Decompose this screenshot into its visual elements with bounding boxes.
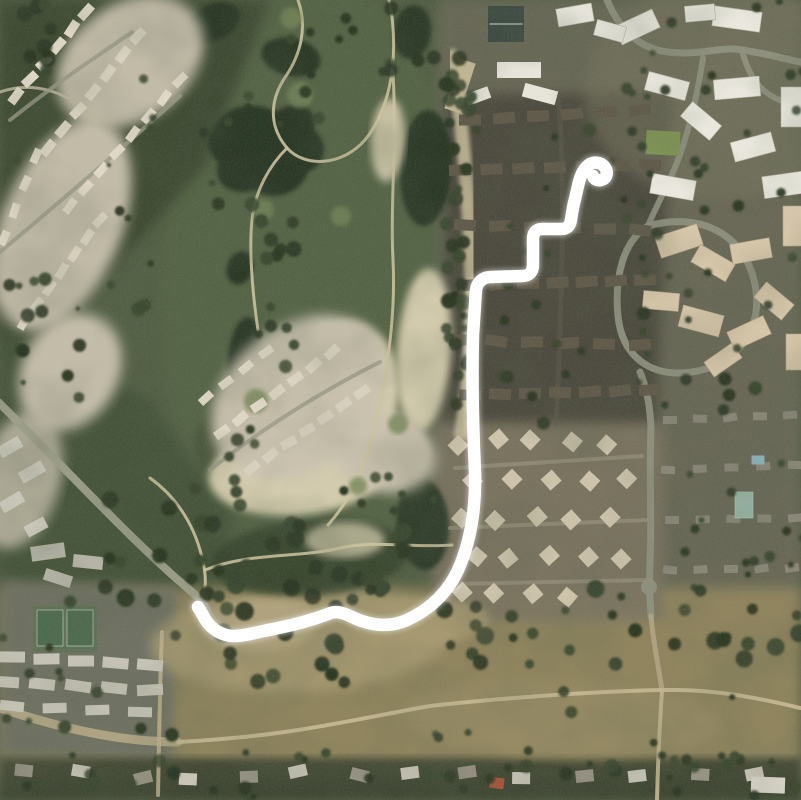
photo-grain-overlay xyxy=(0,0,801,800)
aerial-map xyxy=(0,0,801,800)
screenshot-viewport xyxy=(0,0,801,800)
